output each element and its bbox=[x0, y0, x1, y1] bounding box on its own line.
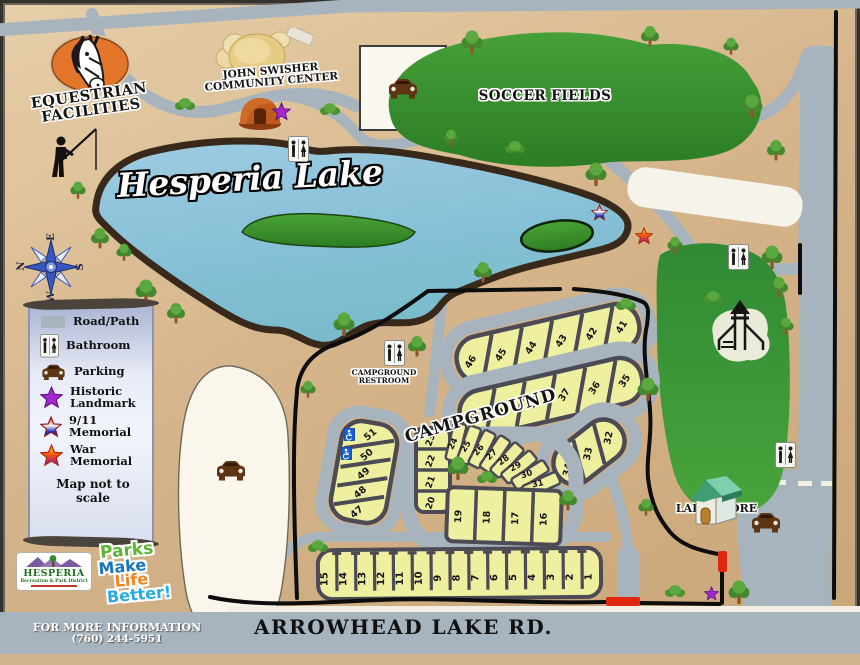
campsite-number: 5 bbox=[508, 574, 519, 581]
campsite-loop: 23222120242526272829303119181716 bbox=[408, 422, 576, 550]
park-map: 4645444342414039383736353433325150494847… bbox=[0, 0, 860, 665]
911-memorial-star-icon bbox=[591, 204, 608, 221]
campsite-number: 2 bbox=[565, 573, 576, 580]
tree-icon bbox=[167, 303, 185, 323]
tree-icon bbox=[70, 182, 85, 199]
campground-sites: 4645444342414039383736353433325150494847… bbox=[317, 287, 659, 599]
road-swatch bbox=[41, 316, 65, 328]
campsite-number: 15 bbox=[319, 572, 330, 586]
parking-car-icon bbox=[214, 460, 248, 481]
historic-landmark-star-icon bbox=[272, 102, 291, 121]
legend-panel: Road/Path Bathroom Parking HistoricLandm… bbox=[30, 304, 152, 542]
tree-icon bbox=[300, 381, 315, 398]
campground-restroom-label: CAMPGROUND RESTROOM bbox=[334, 369, 434, 385]
campsite-left-block: 5150494847 bbox=[317, 407, 410, 536]
compass-s: S bbox=[75, 263, 86, 270]
tree-icon bbox=[767, 140, 785, 160]
tree-icon bbox=[408, 336, 426, 356]
campsite-number: 12 bbox=[376, 572, 387, 586]
historic-landmark-star-icon bbox=[704, 586, 719, 601]
bathroom-icon bbox=[40, 334, 59, 358]
campsite-number: 10 bbox=[414, 571, 425, 585]
lake-store-building bbox=[686, 468, 744, 530]
bathroom-icon bbox=[288, 136, 309, 162]
fisherman-icon bbox=[40, 118, 104, 182]
campsite-number: 3 bbox=[546, 574, 557, 581]
campsite-number: 14 bbox=[338, 572, 349, 586]
compass-n: N bbox=[16, 261, 27, 270]
campsite-number: 13 bbox=[357, 572, 368, 586]
handicap-spot-icon bbox=[341, 447, 352, 460]
parking-car-icon bbox=[40, 364, 67, 381]
campsite-number: 6 bbox=[489, 574, 500, 581]
tree-icon bbox=[723, 38, 738, 55]
campsite-number: 16 bbox=[538, 512, 549, 526]
soccer-fields-label: SOCCER FIELDS bbox=[460, 89, 630, 103]
bush-icon bbox=[665, 585, 685, 597]
west-parking-lot bbox=[179, 366, 290, 638]
legend-item-road: Road/Path bbox=[40, 316, 146, 328]
legend-item-bathroom: Bathroom bbox=[40, 334, 146, 358]
info-phone-label: FOR MORE INFORMATION (760) 244-5951 bbox=[22, 622, 212, 645]
legend-item-911: 9/11Memorial bbox=[40, 415, 146, 438]
legend-item-parking: Parking bbox=[40, 364, 146, 381]
playground-icon bbox=[705, 290, 775, 375]
campsite-front-row: 151413121110987654321 bbox=[318, 548, 601, 599]
campsite-number: 11 bbox=[395, 571, 406, 585]
campsite-number: 18 bbox=[481, 510, 492, 524]
campsite-number: 1 bbox=[584, 573, 595, 580]
bathroom-icon bbox=[728, 244, 749, 270]
legend-item-historic: HistoricLandmark bbox=[40, 386, 146, 409]
911-memorial-star-icon bbox=[40, 416, 62, 438]
bathroom-icon bbox=[384, 340, 405, 366]
handicap-spot-icon bbox=[344, 428, 355, 441]
parking-car-icon bbox=[386, 78, 420, 99]
historic-landmark-star-icon bbox=[40, 386, 63, 409]
tree-icon bbox=[586, 162, 607, 186]
war-memorial-star-icon bbox=[40, 444, 63, 467]
legend-item-war: WarMemorial bbox=[40, 444, 146, 467]
parks-make-life-better-logo: Parks Make Life Better! bbox=[100, 540, 172, 605]
war-memorial-star-icon bbox=[635, 227, 653, 245]
campsite-number: 17 bbox=[510, 512, 521, 526]
campsite-number: 9 bbox=[433, 575, 444, 582]
parking-car-icon bbox=[749, 512, 783, 533]
compass-rose: E N S W bbox=[16, 232, 86, 302]
campsite-number: 19 bbox=[453, 510, 464, 524]
campsite-number: 7 bbox=[470, 574, 481, 581]
compass-e: E bbox=[46, 233, 57, 241]
dry-area bbox=[625, 165, 805, 229]
campsite-number: 4 bbox=[527, 574, 538, 581]
arrowhead-lake-rd-label: ARROWHEAD LAKE RD. bbox=[254, 617, 553, 638]
hesperia-district-logo: HESPERIA Recreation & Park District bbox=[16, 552, 92, 591]
campsite-number: 8 bbox=[452, 574, 463, 581]
bathroom-icon bbox=[775, 442, 796, 468]
map-scale-note: Map not to scale bbox=[40, 477, 146, 505]
